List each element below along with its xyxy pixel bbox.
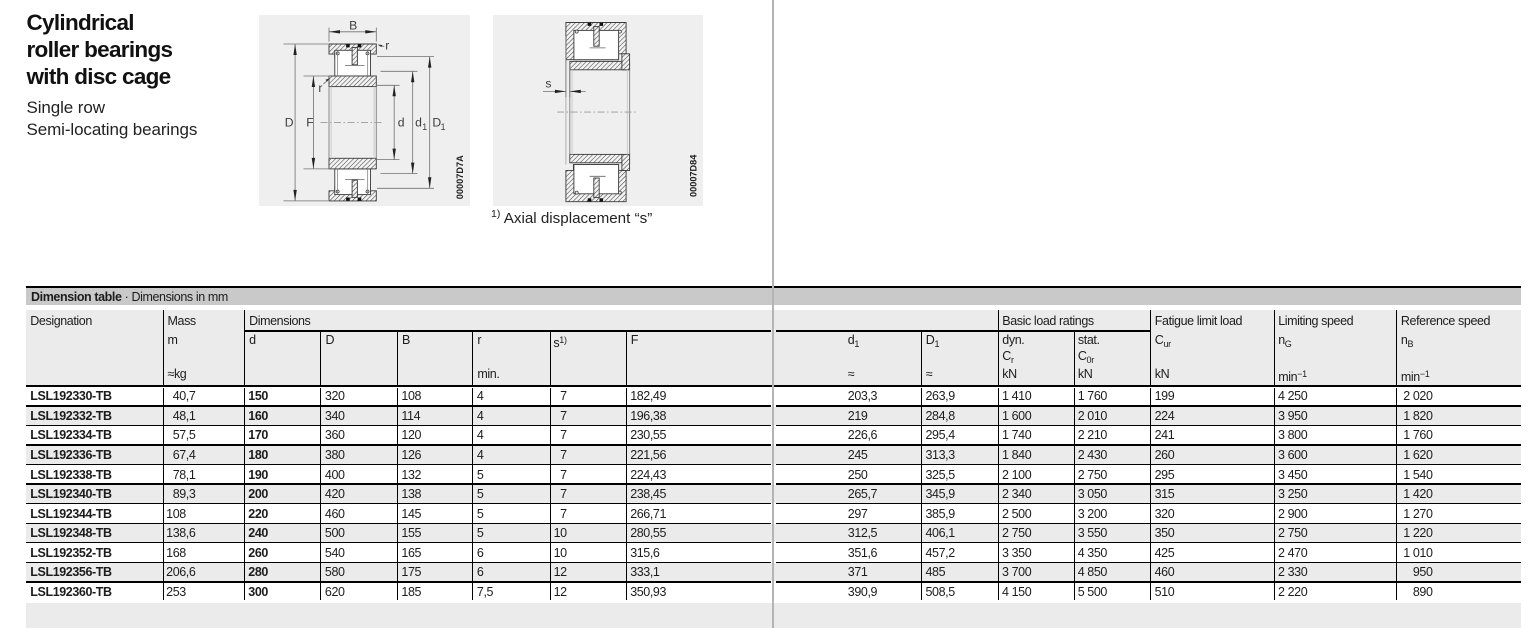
svg-text:s: s (545, 76, 551, 90)
svg-text:D: D (284, 116, 293, 130)
svg-text:d: d (397, 116, 404, 130)
svg-text:r: r (318, 81, 322, 95)
svg-text:d: d (415, 116, 422, 130)
svg-text:1: 1 (440, 122, 445, 132)
svg-text:B: B (349, 18, 357, 32)
svg-text:00007D7A: 00007D7A (454, 155, 464, 199)
svg-text:r: r (385, 38, 389, 52)
svg-text:1: 1 (422, 122, 427, 132)
svg-text:00007D84: 00007D84 (688, 154, 698, 197)
svg-text:F: F (306, 116, 313, 130)
